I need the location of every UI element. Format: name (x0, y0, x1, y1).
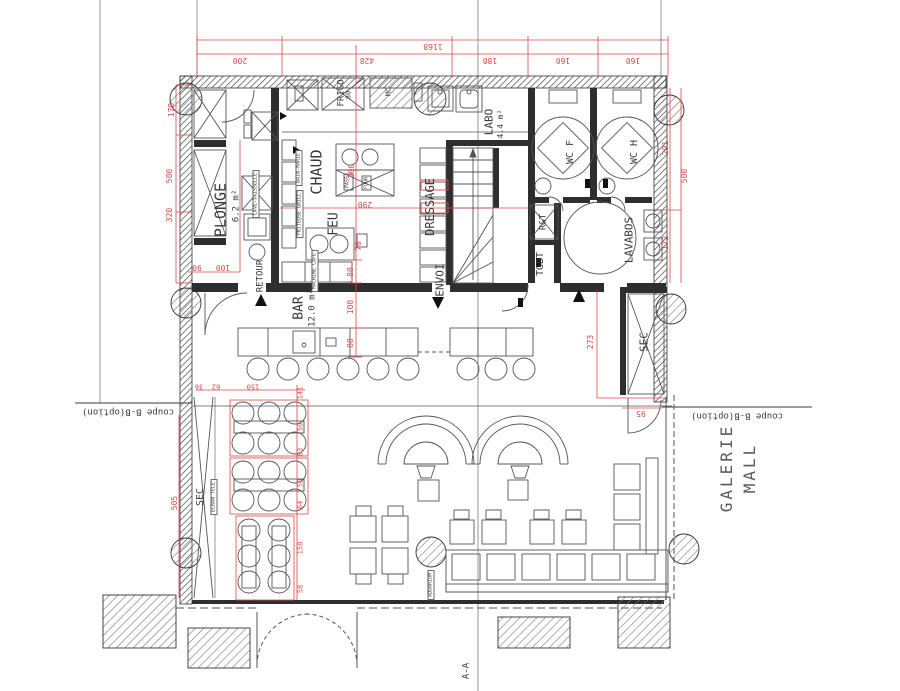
dim-100: 100 (216, 263, 230, 271)
dim-95: 95 (636, 409, 646, 417)
room-label-sec-left: SEC (196, 488, 206, 506)
dim-505: 505 (171, 496, 179, 510)
dim-58: 58 (298, 585, 305, 593)
dim-200: 200 (233, 56, 247, 64)
friteuse-grill-label: FRITEUSE GRILL (297, 190, 304, 238)
dining-seating (350, 458, 668, 592)
dim-160-b: 160 (626, 56, 640, 64)
coupe-bb-left-label: coupe B-B(option) (82, 407, 174, 416)
room-label-dressage: DRESSAGE (424, 178, 436, 236)
room-label-sec-right: SEC (639, 332, 650, 352)
dim-62: 62 (212, 383, 220, 390)
dim-180: 180 (483, 56, 497, 64)
dim-141: 141 (298, 387, 305, 400)
arcade-piers (103, 595, 670, 668)
dim-291: 291 (662, 141, 670, 155)
mall-label: MALL (742, 443, 758, 494)
lounge-sofas (378, 416, 568, 501)
dim-150-bottom: 150 (298, 542, 305, 555)
dim-100-b: 100 (347, 300, 355, 314)
dim-170: 170 (168, 103, 176, 117)
lave-vaisselle-label: LAVE-VAISSELLE (253, 170, 260, 218)
dim-50-a: 50 (298, 423, 305, 431)
dim-90: 90 (192, 263, 202, 271)
dim-150-top: 150 (247, 383, 260, 390)
dim-80-frigo: 80 (346, 91, 353, 99)
dim-428: 428 (360, 56, 374, 64)
storefront-glazing (176, 395, 674, 608)
room-label-rt: R&T (540, 214, 549, 230)
room-label-bar: BAR (293, 296, 306, 319)
floor-plan-drawing (0, 0, 900, 691)
room-label-labo: LABO (484, 109, 495, 136)
bar-counters (205, 293, 535, 380)
dim-1168: 1168 (423, 42, 442, 50)
dim-80-b: 80 (347, 338, 355, 348)
room-label-retour: RETOUR (257, 260, 266, 293)
dim-36: 36 (195, 383, 203, 390)
galerie-label: GALERIE (719, 424, 735, 512)
room-label-envoi: ENVOI (435, 263, 446, 296)
plonge-fixtures (194, 90, 278, 260)
room-label-wc-f: WC F (566, 140, 576, 164)
dim-320: 320 (166, 208, 174, 222)
dim-83: 83 (298, 448, 305, 456)
dim-64: 64 (298, 501, 305, 509)
bain-marie-label: BAIN-MARIE (296, 150, 303, 186)
dim-500-right: 500 (681, 169, 689, 183)
room-label-tgbt: TGBT (536, 252, 546, 276)
room-label-plonge: PLONGE (214, 183, 229, 237)
four-label: FOUR (365, 177, 370, 189)
columns (170, 83, 699, 568)
dim-300: 300 (348, 164, 356, 178)
machine-cafe-label: MACHINE CAFE (312, 250, 319, 292)
room-label-lavabos: LAVABOS (624, 217, 635, 263)
room-label-chaud: CHAUD (310, 149, 325, 194)
room-area-plonge: 6.2 m² (233, 190, 242, 223)
room-label-feu: FEU (328, 212, 341, 235)
dim-273: 273 (587, 335, 595, 349)
dim-172: 172 (662, 236, 670, 250)
room-area-bar: 12.0 m² (309, 289, 318, 327)
dim-290: 290 (358, 200, 372, 208)
ecran-tele-label: ECRAN TELE (211, 479, 218, 515)
dim-50-b: 50 (298, 479, 305, 487)
coupe-bb-right-label: coupe B-B(option) (691, 411, 783, 420)
room-area-labo: 4.4 m² (497, 110, 505, 139)
dim-70: 70 (355, 241, 363, 251)
entrance-doors (257, 612, 357, 668)
room-label-wc-h: WC H (630, 140, 640, 164)
aquarium-label: AQUARIUM (428, 570, 435, 600)
floor-plan: PLONGE 6.2 m² CHAUD FEU DRESSAGE ENVOI B… (0, 0, 900, 691)
dim-500-left: 500 (166, 169, 174, 183)
dim-160-a: 160 (556, 56, 570, 64)
section-aa-label: A-A (463, 663, 472, 679)
mc-label: MC (386, 88, 393, 96)
dim-80-a: 80 (347, 267, 355, 277)
